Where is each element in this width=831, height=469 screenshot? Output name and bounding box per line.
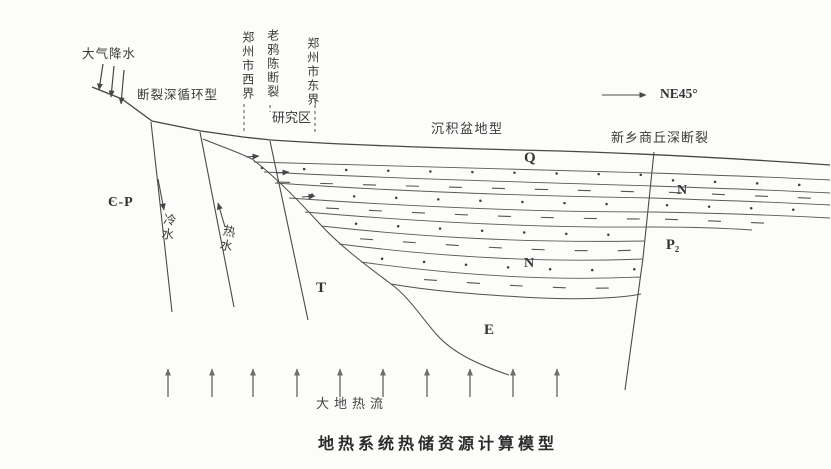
sand-dot-rows xyxy=(262,168,830,270)
strata-boundaries xyxy=(254,162,830,278)
sedimentary-basin-type-label: 沉积盆地型 xyxy=(431,122,504,137)
n-e-boundary-curve xyxy=(391,284,641,299)
unit-n-upper-label: N xyxy=(677,183,687,199)
study-area-label: 研究区 xyxy=(272,111,311,126)
heat-flow-label: 大地热流 xyxy=(316,397,388,412)
zhengzhou-west-boundary-label: 郑州市西界 xyxy=(240,31,254,101)
unit-t-label: T xyxy=(316,280,326,297)
xinxiang-shangqiu-fault-label: 新乡商丘深断裂 xyxy=(611,131,709,146)
unit-n-lower-label: N xyxy=(524,256,534,272)
clay-dash-rows xyxy=(277,182,830,288)
basin-west-boundary-curve xyxy=(203,139,509,375)
unit-e-label: E xyxy=(484,322,494,339)
unit-p2-label: P₂ xyxy=(666,237,679,254)
fault-lines xyxy=(151,122,654,390)
unit-cambrian-permian-label: Є-P xyxy=(108,195,134,211)
geothermal-model-figure: 大气降水 断裂深循环型 郑州市西界 老鸦陈断裂 郑州市东界 研究区 沉积盆地型 … xyxy=(0,0,831,469)
ne45-direction-label: NE45° xyxy=(660,86,698,102)
unit-q-label: Q xyxy=(524,150,536,167)
figure-caption: 地热系统热储资源计算模型 xyxy=(318,436,558,454)
zhengzhou-east-boundary-label: 郑州市东界 xyxy=(305,37,319,107)
fault-west-2 xyxy=(200,132,234,307)
fault-laoyachen xyxy=(270,141,308,320)
diagram-linework xyxy=(0,0,831,469)
laoyachen-fault-label: 老鸦陈断裂 xyxy=(265,29,279,99)
precipitation-label: 大气降水 xyxy=(82,47,136,61)
fault-xinxiang-shangqiu xyxy=(625,152,654,390)
fault-circulation-type-label: 断裂深循环型 xyxy=(137,88,218,102)
heat-flow-arrows xyxy=(168,369,557,397)
